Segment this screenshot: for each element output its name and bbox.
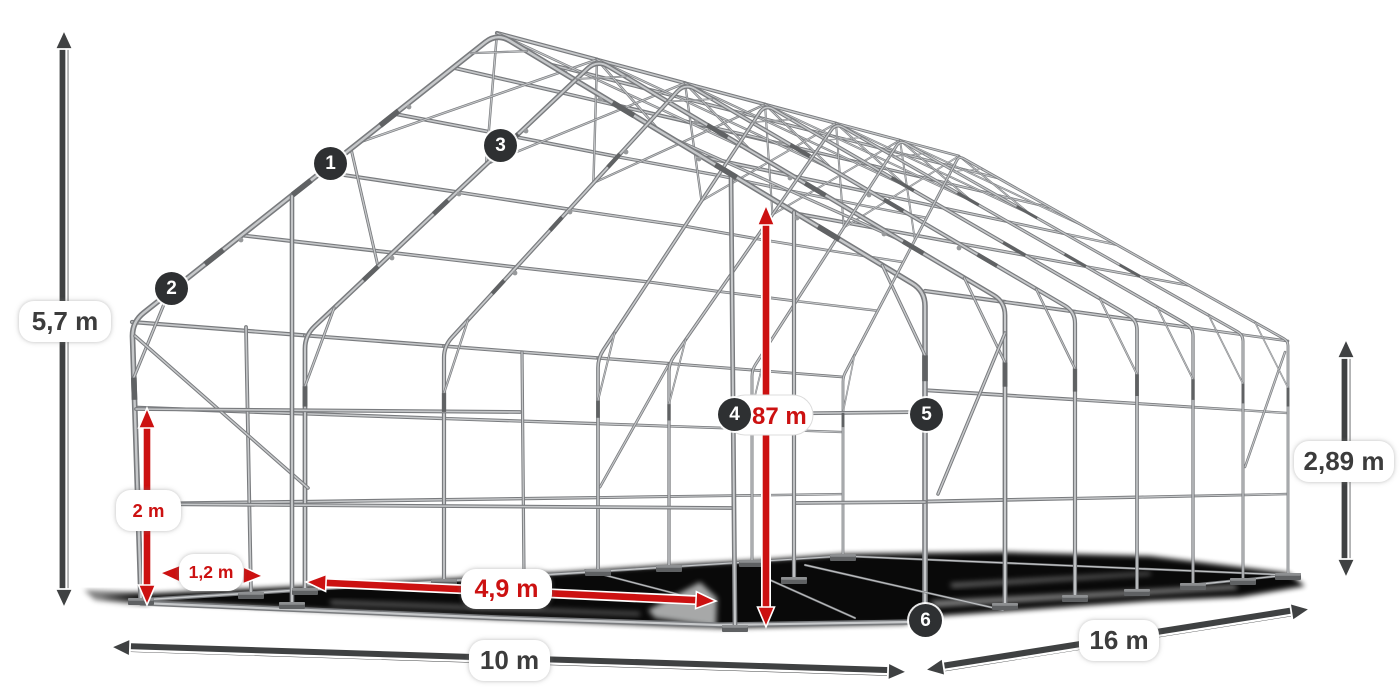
svg-text:87 m: 87 m [752, 403, 807, 430]
